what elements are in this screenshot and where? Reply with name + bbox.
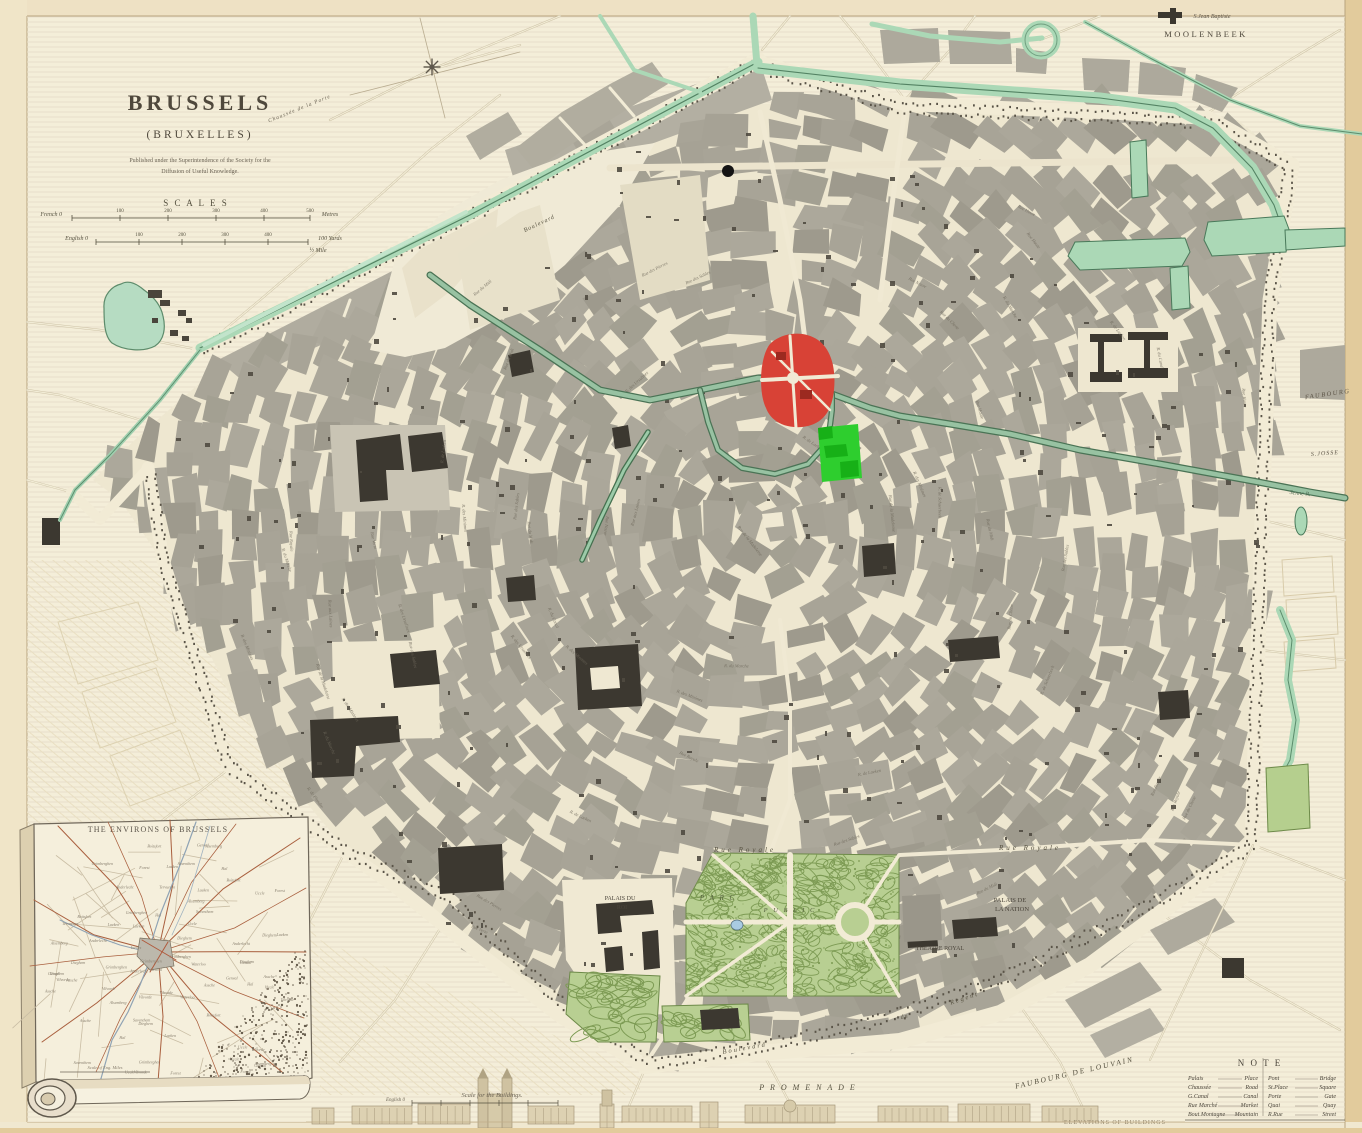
svg-text:N O T E: N O T E	[1238, 1058, 1282, 1068]
svg-text:Scale for the Buildings.: Scale for the Buildings.	[461, 1092, 522, 1099]
svg-text:Genval: Genval	[151, 967, 163, 972]
svg-text:Laeken: Laeken	[107, 922, 120, 927]
svg-text:Assche: Assche	[203, 983, 215, 988]
svg-text:Vilvorde: Vilvorde	[251, 1047, 265, 1052]
svg-text:R. du Marche: R. du Marche	[723, 663, 749, 668]
svg-text:Dieghem: Dieghem	[261, 932, 277, 937]
svg-text:R.Rue: R.Rue	[1267, 1112, 1283, 1118]
svg-text:S.Jean Baptiste: S.Jean Baptiste	[1194, 14, 1231, 20]
svg-text:Hal: Hal	[154, 912, 162, 917]
svg-text:Vilvorde: Vilvorde	[56, 977, 70, 982]
svg-text:English 0: English 0	[385, 1098, 406, 1103]
svg-text:Genval: Genval	[254, 1063, 266, 1068]
svg-text:Uccle: Uccle	[265, 984, 275, 989]
svg-text:THE ENVIRONS OF BRUSSELS: THE ENVIRONS OF BRUSSELS	[88, 825, 229, 834]
svg-text:LA NATION: LA NATION	[995, 906, 1029, 913]
svg-text:Genval: Genval	[226, 976, 238, 981]
svg-text:Uccle: Uccle	[230, 1056, 240, 1061]
svg-text:ROI: ROI	[617, 905, 627, 911]
svg-text:Grimberghen: Grimberghen	[126, 910, 147, 915]
svg-text:Assche: Assche	[44, 989, 56, 994]
svg-text:P A R C: P A R C	[699, 894, 736, 902]
svg-text:Boitsfort: Boitsfort	[77, 914, 92, 919]
svg-text:Vilvorde: Vilvorde	[281, 997, 295, 1002]
svg-text:400: 400	[264, 233, 272, 238]
svg-text:St.Place: St.Place	[1268, 1085, 1288, 1091]
svg-text:Dieghem: Dieghem	[49, 971, 65, 976]
svg-text:Laeken: Laeken	[163, 1033, 176, 1038]
svg-text:BRUSSELS: BRUSSELS	[128, 90, 273, 115]
svg-text:Alsemberg: Alsemberg	[50, 941, 68, 946]
svg-text:Laeken: Laeken	[197, 887, 210, 892]
svg-text:Anderlecht: Anderlecht	[129, 969, 148, 974]
svg-text:Waterloo: Waterloo	[191, 962, 206, 967]
svg-text:Porte: Porte	[1267, 1094, 1282, 1100]
svg-text:MOOLENBEEK: MOOLENBEEK	[1164, 29, 1248, 39]
svg-text:Waterloo: Waterloo	[180, 995, 195, 1000]
svg-text:500: 500	[306, 209, 314, 214]
svg-text:100: 100	[135, 233, 143, 238]
svg-text:P R O M E N A D E: P R O M E N A D E	[758, 1083, 857, 1092]
svg-text:Vilvorde: Vilvorde	[102, 986, 116, 991]
svg-text:½ Mile: ½ Mile	[310, 247, 327, 254]
svg-text:Boitsfort: Boitsfort	[147, 843, 162, 848]
svg-text:Saventhem: Saventhem	[196, 909, 213, 914]
svg-text:Rue Royale: Rue Royale	[713, 846, 776, 854]
svg-text:ELEVATIONS OF BUILDINGS: ELEVATIONS OF BUILDINGS	[1064, 1120, 1166, 1126]
svg-text:300: 300	[212, 209, 220, 214]
svg-text:Dieghem: Dieghem	[239, 959, 255, 964]
svg-text:Uccle: Uccle	[238, 1044, 248, 1049]
svg-text:Grimberghen: Grimberghen	[92, 861, 113, 866]
svg-text:Bridge: Bridge	[1320, 1076, 1337, 1082]
svg-text:Alsemberg: Alsemberg	[187, 899, 205, 904]
svg-text:Grimberghen: Grimberghen	[169, 954, 190, 959]
svg-text:G.Canal: G.Canal	[1188, 1094, 1209, 1100]
svg-text:R. de Schaerbeek: R. de Schaerbeek	[937, 486, 942, 519]
svg-text:Dieghem: Dieghem	[176, 936, 192, 941]
svg-text:Metres: Metres	[321, 212, 339, 218]
svg-text:Vilvorde: Vilvorde	[160, 990, 174, 995]
svg-text:Published under the Superinten: Published under the Superintendence of t…	[129, 157, 271, 164]
svg-text:Boitsfort: Boitsfort	[226, 877, 241, 882]
svg-text:Uccle: Uccle	[188, 921, 198, 926]
svg-text:Scale of Eng. Miles: Scale of Eng. Miles	[88, 1065, 123, 1070]
svg-text:Alsemberg: Alsemberg	[204, 843, 222, 848]
svg-text:Rue Royale: Rue Royale	[998, 844, 1061, 852]
svg-text:Laeken: Laeken	[165, 864, 178, 869]
svg-text:Forest: Forest	[169, 1071, 181, 1076]
svg-text:(BRUXELLES): (BRUXELLES)	[146, 129, 253, 141]
svg-text:Forest: Forest	[138, 865, 150, 870]
svg-text:P U B L I C: P U B L I C	[763, 907, 817, 914]
svg-text:Ixelles: Ixelles	[130, 945, 142, 950]
svg-text:Tervueren: Tervueren	[159, 884, 175, 889]
svg-text:Laeken: Laeken	[132, 923, 145, 928]
svg-text:Hal: Hal	[246, 981, 254, 986]
svg-text:Alsemberg: Alsemberg	[109, 1000, 127, 1005]
svg-text:Place: Place	[1243, 1076, 1258, 1082]
svg-text:Grimberghen: Grimberghen	[139, 1060, 160, 1065]
svg-text:Anderlecht: Anderlecht	[88, 938, 107, 943]
svg-text:Forest: Forest	[274, 888, 286, 893]
svg-text:Palais: Palais	[1187, 1076, 1204, 1082]
svg-text:Grimberghen: Grimberghen	[106, 964, 127, 969]
svg-text:Hal: Hal	[220, 866, 228, 871]
svg-text:S C A L E S: S C A L E S	[163, 198, 228, 208]
svg-text:Boitsfort: Boitsfort	[207, 1013, 222, 1018]
svg-text:Canal: Canal	[1243, 1094, 1258, 1100]
svg-text:Forest: Forest	[239, 1069, 251, 1074]
svg-text:Square: Square	[1319, 1085, 1336, 1091]
svg-text:Pont: Pont	[1267, 1076, 1280, 1082]
svg-text:Anderlecht: Anderlecht	[231, 941, 250, 946]
svg-text:Vilvorde: Vilvorde	[139, 995, 153, 1000]
svg-text:Road: Road	[1244, 1085, 1259, 1091]
svg-text:Uccle: Uccle	[255, 891, 265, 896]
svg-text:Street: Street	[1322, 1112, 1336, 1118]
svg-text:French 0: French 0	[39, 212, 62, 218]
svg-text:Hal: Hal	[118, 1035, 126, 1040]
svg-text:100 Yards: 100 Yards	[318, 236, 342, 242]
svg-text:Quay: Quay	[1323, 1103, 1336, 1109]
svg-text:Quai: Quai	[1268, 1103, 1280, 1109]
svg-text:PALAIS DU: PALAIS DU	[605, 896, 636, 902]
svg-text:200: 200	[178, 233, 186, 238]
svg-text:Market: Market	[1240, 1103, 1259, 1109]
svg-text:Saventhem: Saventhem	[178, 861, 195, 866]
svg-text:Assche: Assche	[79, 1018, 91, 1023]
svg-text:PALAIS DE: PALAIS DE	[994, 897, 1026, 904]
svg-text:Rue Royale: Rue Royale	[289, 530, 295, 552]
svg-text:Rue Marché: Rue Marché	[1187, 1103, 1218, 1109]
svg-text:200: 200	[164, 209, 172, 214]
svg-text:Laeken: Laeken	[276, 932, 289, 937]
svg-text:Dieghem: Dieghem	[70, 960, 86, 965]
svg-text:Anderlecht: Anderlecht	[115, 884, 134, 889]
svg-text:Tervueren: Tervueren	[62, 921, 78, 926]
svg-text:Chaussée: Chaussée	[1188, 1085, 1211, 1091]
svg-text:400: 400	[260, 209, 268, 214]
svg-text:Saventhem: Saventhem	[133, 1017, 150, 1022]
svg-text:THEATRE ROYAL: THEATRE ROYAL	[916, 946, 964, 952]
svg-text:100: 100	[116, 209, 124, 214]
svg-text:Gate: Gate	[1324, 1094, 1336, 1100]
svg-text:300: 300	[221, 233, 229, 238]
svg-text:Grimberghen: Grimberghen	[140, 959, 161, 964]
svg-text:Assche: Assche	[263, 974, 275, 979]
svg-text:English 0: English 0	[64, 236, 88, 242]
svg-text:Diffusion of Useful Knowledge.: Diffusion of Useful Knowledge.	[161, 168, 239, 175]
